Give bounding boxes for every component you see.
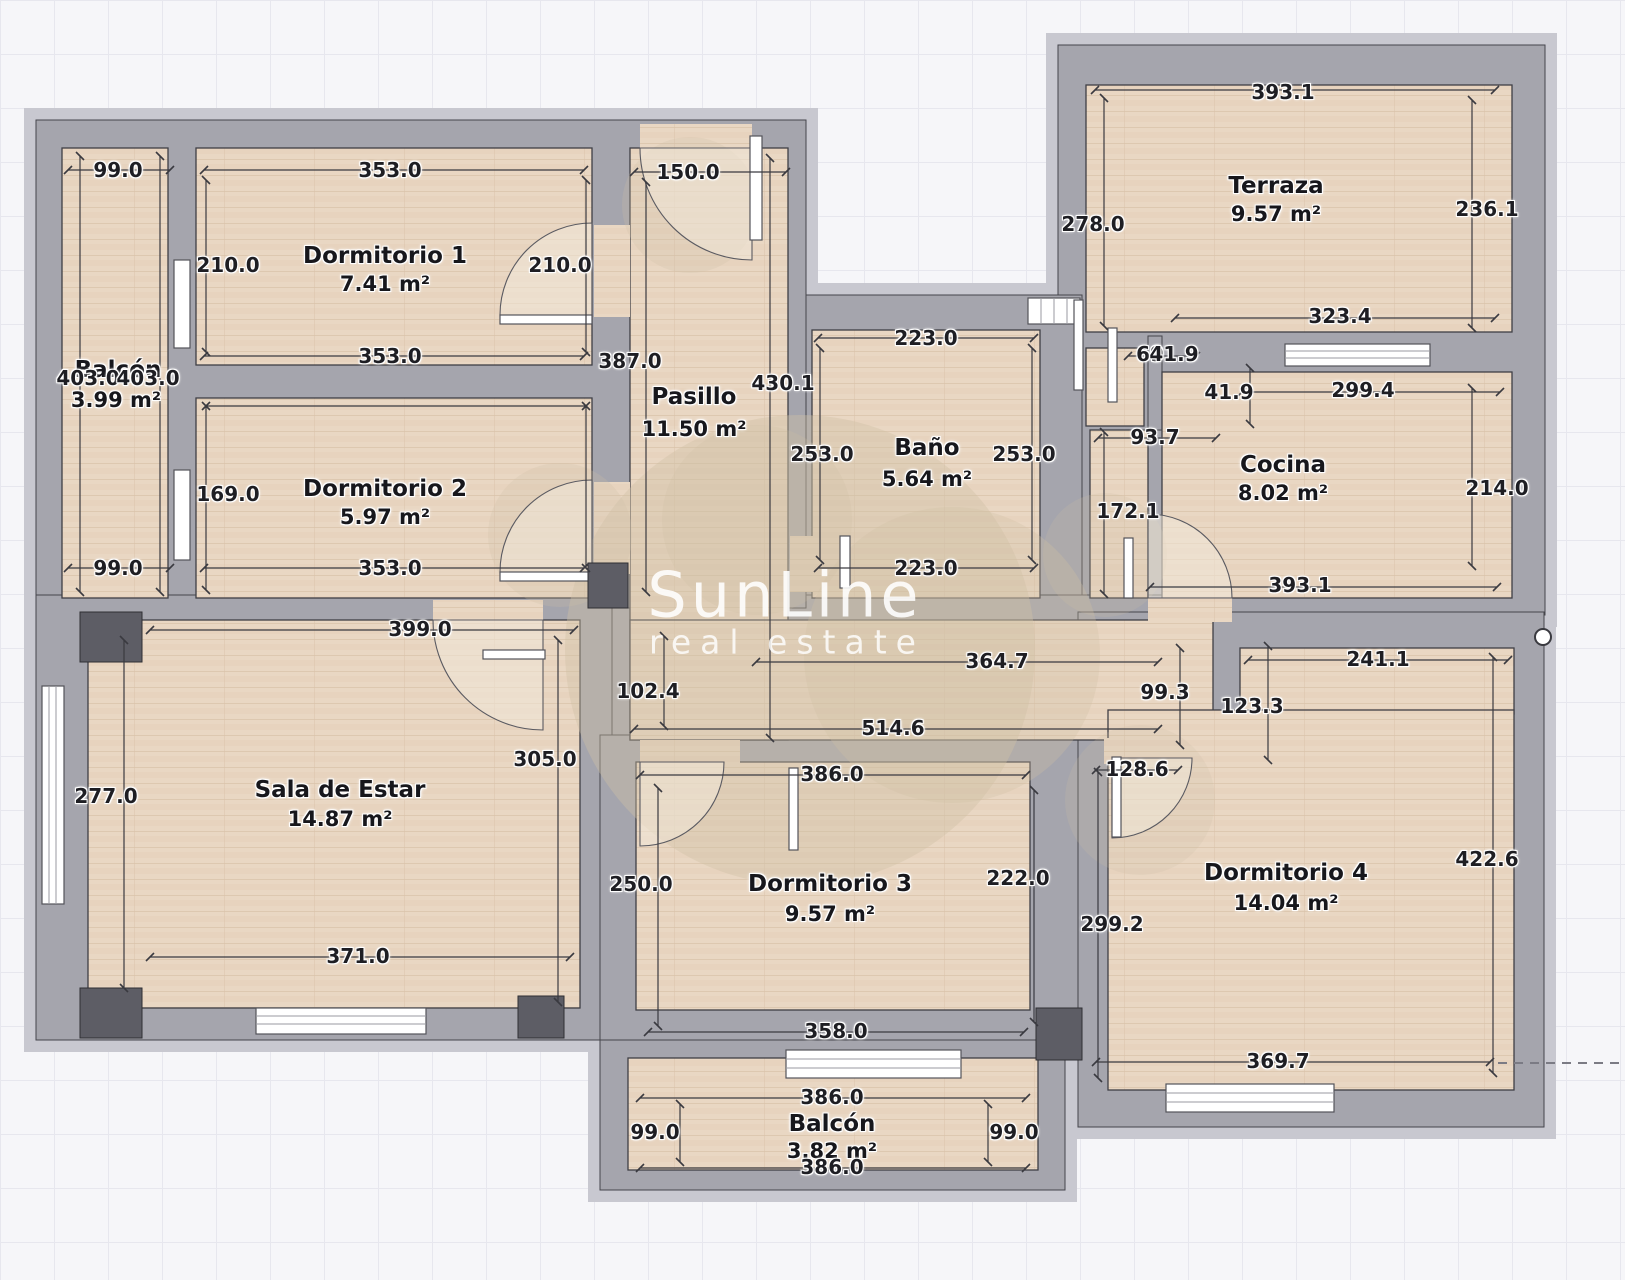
dim-label: 172.1 xyxy=(1096,499,1159,523)
dim-label: 99.0 xyxy=(93,556,142,580)
room-area-pasillo: 11.50 m² xyxy=(642,417,747,441)
dim-label: 364.7 xyxy=(965,649,1028,673)
dim-label: 393.1 xyxy=(1251,80,1314,104)
dim-label: 422.6 xyxy=(1455,847,1518,871)
room-area-sala-de-estar: 14.87 m² xyxy=(288,807,393,831)
dim-label: 99.0 xyxy=(93,158,142,182)
room-name-pasillo: Pasillo xyxy=(652,384,737,410)
dim-label: 99.3 xyxy=(1140,680,1189,704)
room-area-dormitorio-1: 7.41 m² xyxy=(340,272,430,296)
room-area-balcon-izquierdo: 3.99 m² xyxy=(71,388,161,412)
dim-label: 99.0 xyxy=(630,1120,679,1144)
dim-label: 278.0 xyxy=(1061,212,1124,236)
dim-label: 241.1 xyxy=(1346,647,1409,671)
dim-label: 214.0 xyxy=(1465,476,1528,500)
dim-label: 128.6 xyxy=(1105,757,1168,781)
dim-label: 169.0 xyxy=(196,482,259,506)
dim-label: 399.0 xyxy=(388,617,451,641)
dim-label: 277.0 xyxy=(74,784,137,808)
dim-label: 358.0 xyxy=(804,1019,867,1043)
dim-label: 222.0 xyxy=(986,866,1049,890)
labels-layer: SunLine real estate Balcón 3.99 m² Dormi… xyxy=(0,0,1625,1280)
room-name-bano: Baño xyxy=(894,435,959,461)
dim-label: 223.0 xyxy=(894,556,957,580)
watermark-brand: SunLine xyxy=(647,559,922,632)
dim-label: 386.0 xyxy=(800,762,863,786)
dim-label: 253.0 xyxy=(992,442,1055,466)
room-area-terraza: 9.57 m² xyxy=(1231,202,1321,226)
dim-label: 102.4 xyxy=(616,679,679,703)
dim-label: 299.4 xyxy=(1331,378,1394,402)
room-name-sala-de-estar: Sala de Estar xyxy=(255,777,426,803)
dim-label: 253.0 xyxy=(790,442,853,466)
room-name-dormitorio-2: Dormitorio 2 xyxy=(303,476,467,502)
dim-label: 369.7 xyxy=(1246,1049,1309,1073)
room-area-cocina: 8.02 m² xyxy=(1238,481,1328,505)
dim-label: 386.0 xyxy=(800,1085,863,1109)
room-name-balcon-inferior: Balcón xyxy=(789,1111,876,1137)
dim-label: 150.0 xyxy=(656,160,719,184)
floor-plan: SunLine real estate Balcón 3.99 m² Dormi… xyxy=(0,0,1625,1280)
dim-label: 387.0 xyxy=(598,349,661,373)
dim-label: 514.6 xyxy=(861,716,924,740)
room-name-dormitorio-3: Dormitorio 3 xyxy=(748,871,912,897)
dim-label: 371.0 xyxy=(326,944,389,968)
dim-label: 210.0 xyxy=(528,253,591,277)
dim-label: 430.1 xyxy=(751,371,814,395)
watermark-tagline: real estate xyxy=(649,623,925,662)
dim-label: 210.0 xyxy=(196,253,259,277)
room-name-dormitorio-1: Dormitorio 1 xyxy=(303,243,467,269)
room-name-terraza: Terraza xyxy=(1228,173,1323,199)
room-area-dormitorio-4: 14.04 m² xyxy=(1234,891,1339,915)
dim-label: 236.1 xyxy=(1455,197,1518,221)
dim-label: 250.0 xyxy=(609,872,672,896)
room-area-bano: 5.64 m² xyxy=(882,467,972,491)
dim-label: 305.0 xyxy=(513,747,576,771)
room-area-dormitorio-2: 5.97 m² xyxy=(340,505,430,529)
dim-label: 223.0 xyxy=(894,326,957,350)
dim-label: 123.3 xyxy=(1220,694,1283,718)
dim-label: 99.0 xyxy=(989,1120,1038,1144)
dim-label: 353.0 xyxy=(358,556,421,580)
dim-label: 41.9 xyxy=(1149,342,1198,366)
dim-label: 393.1 xyxy=(1268,573,1331,597)
dim-label: 353.0 xyxy=(358,344,421,368)
dim-label: 353.0 xyxy=(358,158,421,182)
room-name-dormitorio-4: Dormitorio 4 xyxy=(1204,860,1368,886)
room-name-cocina: Cocina xyxy=(1240,452,1326,478)
room-area-dormitorio-3: 9.57 m² xyxy=(785,902,875,926)
dim-label: 403.0 xyxy=(116,366,179,390)
dim-label: 386.0 xyxy=(800,1155,863,1179)
dim-label: 323.4 xyxy=(1308,304,1371,328)
dim-label: 41.9 xyxy=(1204,380,1253,404)
dim-label: 299.2 xyxy=(1080,912,1143,936)
dim-label: 403.0 xyxy=(56,366,119,390)
dim-label: 93.7 xyxy=(1130,425,1179,449)
